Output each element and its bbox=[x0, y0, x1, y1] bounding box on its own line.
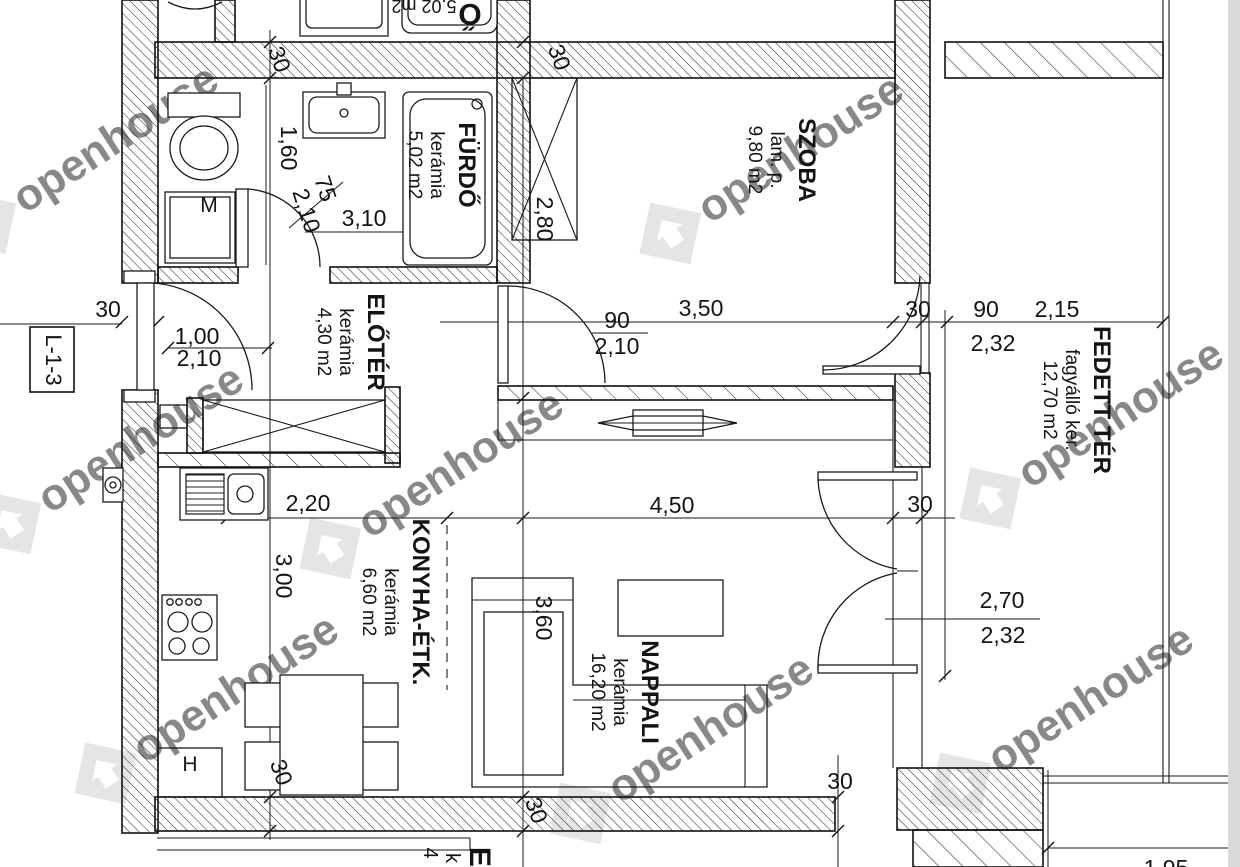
bathroom-door-leaf bbox=[236, 189, 248, 267]
room-5-area: 16,20 m2 bbox=[587, 652, 608, 731]
entry-door-frame-top bbox=[124, 271, 155, 283]
appliance-M: M bbox=[200, 194, 218, 217]
wall-right-upper bbox=[895, 0, 930, 283]
dim-12-2,10: 2,10 bbox=[595, 333, 640, 359]
edge-fragment-4: 4 bbox=[419, 847, 441, 858]
wall-terrace-corner bbox=[897, 768, 1043, 830]
room-1-material: kerámia bbox=[426, 131, 447, 199]
wall-stub-upper-unit bbox=[215, 0, 235, 42]
szoba-terrace-door-swing-arc bbox=[823, 276, 920, 370]
upper-unit-toilet-arc bbox=[168, 2, 222, 9]
edge-fragment-1: 5,02 m2 bbox=[391, 0, 456, 16]
edge-fragment-3: k bbox=[441, 853, 463, 864]
bathroom-sink bbox=[303, 92, 385, 138]
kitchen-sink-drainer bbox=[186, 474, 224, 514]
upper-unit-sink bbox=[300, 0, 388, 36]
title-box: L-1-3 bbox=[30, 327, 74, 392]
room-1-area: 5,02 m2 bbox=[404, 131, 425, 200]
room-3-area: 4,30 m2 bbox=[313, 308, 334, 377]
dim-24-30: 30 bbox=[827, 768, 853, 794]
dim-7-30: 30 bbox=[95, 296, 121, 322]
dim-9-2,10: 2,10 bbox=[177, 345, 222, 371]
dim-14-90: 90 bbox=[973, 296, 999, 322]
room-3-name: ELŐTÉR bbox=[362, 293, 390, 390]
wall-left-upper bbox=[122, 0, 158, 283]
edge-fragment-2: El bbox=[463, 847, 496, 867]
room-6-area: 12,70 m2 bbox=[1039, 360, 1060, 439]
room-4-material: kerámia bbox=[380, 568, 401, 636]
wall-terrace-corner-lower bbox=[913, 830, 1043, 867]
meter-box bbox=[103, 468, 123, 502]
toilet-tank bbox=[168, 93, 240, 117]
room-2-name: SZOBA bbox=[793, 118, 820, 202]
wall-right-middle bbox=[895, 373, 930, 467]
room-2-material: lam. p. bbox=[766, 131, 787, 188]
edge-fragment-0: Ő bbox=[458, 0, 481, 31]
dim-27-1,95: 1,95 bbox=[1144, 855, 1189, 867]
floor-plan-page: openhouseopenhouseopenhouseopenhouseopen… bbox=[0, 0, 1240, 867]
watermark-house-icon bbox=[0, 193, 16, 255]
room-6-material: fagyálló ker. bbox=[1061, 349, 1082, 450]
dim-11-90: 90 bbox=[604, 307, 630, 333]
page-edge-strip bbox=[1228, 0, 1240, 867]
dim-10-3,50: 3,50 bbox=[679, 295, 724, 321]
wall-left-lower bbox=[122, 390, 158, 833]
room-5-name: NAPPALI bbox=[636, 640, 663, 744]
coffee-table bbox=[618, 580, 723, 636]
dim-19-30: 30 bbox=[907, 491, 933, 517]
terrace-double-door-lower-leaf bbox=[818, 665, 917, 673]
dim-6-2,80: 2,80 bbox=[532, 197, 558, 242]
dim-13-30: 30 bbox=[905, 296, 931, 322]
bathroom-sink-faucet bbox=[337, 83, 351, 95]
room-3-material: kerámia bbox=[335, 308, 356, 376]
drawing-code: L-1-3 bbox=[41, 334, 66, 385]
dim-23-2,32: 2,32 bbox=[981, 622, 1026, 648]
wardrobe-post-right bbox=[385, 387, 400, 463]
dim-2-1,60: 1,60 bbox=[276, 126, 302, 171]
wall-bottom bbox=[155, 797, 835, 831]
entry-door-leaf bbox=[137, 283, 154, 390]
dim-16-2,32: 2,32 bbox=[971, 330, 1016, 356]
room-2-area: 9,80 m2 bbox=[744, 126, 765, 195]
dim-15-2,15: 2,15 bbox=[1035, 296, 1080, 322]
appliance-H: H bbox=[182, 753, 197, 776]
terrace-double-door-upper-leaf bbox=[818, 472, 917, 480]
dim-20-3,00: 3,00 bbox=[271, 554, 297, 599]
szoba-door-leaf bbox=[498, 286, 508, 383]
dim-22-2,70: 2,70 bbox=[980, 587, 1025, 613]
terrace-double-door-lower-arc bbox=[818, 573, 897, 669]
wardrobe-post-left bbox=[187, 398, 203, 453]
wall-bath-south-right bbox=[330, 267, 497, 283]
wall-szoba-south bbox=[498, 386, 893, 400]
room-4-area: 6,60 m2 bbox=[358, 568, 379, 637]
wall-kitchen-north bbox=[158, 453, 400, 467]
dim-18-4,50: 4,50 bbox=[650, 492, 695, 518]
room-5-material: kerámia bbox=[609, 658, 630, 726]
dim-5-3,10: 3,10 bbox=[342, 205, 387, 231]
wall-terrace-north bbox=[945, 42, 1163, 78]
room-4-name: KONYHA-ÉTK. bbox=[407, 519, 435, 686]
floor-plan-drawing: openhouseopenhouseopenhouseopenhouseopen… bbox=[0, 0, 1240, 867]
wall-bath-south-left bbox=[158, 267, 238, 283]
room-1-name: FÜRDŐ bbox=[453, 122, 481, 207]
entry-door-frame-bottom bbox=[124, 390, 155, 402]
room-6-name: FEDETT TÉR bbox=[1088, 326, 1116, 474]
szoba-terrace-door-leaf bbox=[823, 366, 920, 374]
dim-17-2,20: 2,20 bbox=[286, 490, 331, 516]
terrace-double-door-upper-arc bbox=[818, 478, 897, 569]
dim-21-3,60: 3,60 bbox=[531, 596, 557, 641]
